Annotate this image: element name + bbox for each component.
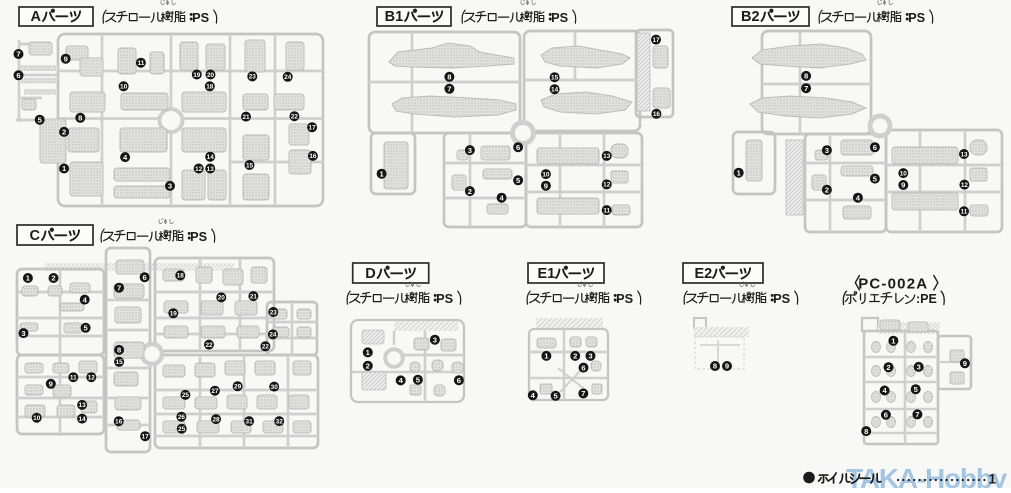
svg-text:32: 32 — [276, 418, 284, 425]
svg-text:28: 28 — [212, 416, 220, 423]
svg-text:12: 12 — [961, 182, 969, 189]
svg-text:10: 10 — [120, 84, 128, 91]
svg-text:19: 19 — [193, 72, 201, 79]
svg-text:TAKA-Hobby: TAKA-Hobby — [846, 463, 1008, 488]
svg-text:2: 2 — [62, 128, 66, 137]
svg-text:8: 8 — [713, 362, 717, 371]
svg-text:2: 2 — [825, 185, 829, 194]
svg-text:2: 2 — [51, 274, 55, 283]
svg-text:13: 13 — [79, 402, 87, 409]
svg-text:26: 26 — [178, 414, 186, 421]
svg-text:7: 7 — [581, 389, 585, 398]
svg-text:21: 21 — [242, 114, 250, 121]
svg-text:23: 23 — [249, 74, 257, 81]
svg-text:22: 22 — [291, 114, 299, 121]
svg-text:B2: B2 — [741, 9, 760, 25]
svg-text:29: 29 — [234, 384, 242, 391]
svg-text:8: 8 — [804, 72, 808, 81]
svg-text:7: 7 — [117, 283, 121, 292]
svg-text:14: 14 — [551, 87, 559, 94]
svg-text:22: 22 — [205, 342, 213, 349]
svg-text:15: 15 — [246, 162, 254, 169]
svg-text:11: 11 — [138, 60, 145, 67]
svg-text:14: 14 — [207, 154, 215, 161]
svg-text:PC-002A: PC-002A — [858, 276, 928, 293]
svg-text:27: 27 — [211, 388, 219, 395]
svg-text:16: 16 — [653, 111, 661, 118]
svg-text:7: 7 — [804, 84, 808, 93]
svg-text:PS: PS — [551, 10, 568, 25]
svg-text:16: 16 — [115, 419, 123, 426]
svg-text:9: 9 — [963, 359, 967, 368]
svg-text:PS: PS — [192, 10, 209, 25]
svg-text:10: 10 — [542, 171, 550, 178]
svg-text:8: 8 — [78, 114, 82, 123]
svg-text:13: 13 — [960, 151, 968, 158]
svg-text:6: 6 — [884, 411, 888, 420]
svg-text:9: 9 — [49, 380, 53, 389]
svg-text:8: 8 — [864, 427, 868, 436]
svg-text:6: 6 — [457, 376, 461, 385]
svg-text:3: 3 — [21, 329, 25, 338]
svg-text:D: D — [365, 266, 375, 282]
svg-text:9: 9 — [725, 362, 729, 371]
svg-text:2: 2 — [886, 363, 890, 372]
svg-text:6: 6 — [873, 143, 877, 152]
svg-text:31: 31 — [246, 418, 254, 425]
svg-text:6: 6 — [581, 363, 585, 372]
svg-text:30: 30 — [271, 384, 279, 391]
svg-text:6: 6 — [516, 143, 520, 152]
svg-text:17: 17 — [309, 125, 317, 132]
svg-text:PS: PS — [773, 291, 790, 306]
svg-text:9: 9 — [64, 54, 68, 63]
svg-text:15: 15 — [551, 75, 559, 82]
svg-text:E1: E1 — [538, 266, 556, 282]
svg-text:7: 7 — [915, 410, 919, 419]
svg-text:20: 20 — [207, 72, 215, 79]
svg-text:3: 3 — [168, 182, 172, 191]
svg-text:C: C — [30, 228, 41, 244]
svg-text:12: 12 — [88, 375, 96, 382]
svg-text:3: 3 — [468, 146, 472, 155]
svg-text:9: 9 — [901, 181, 905, 190]
svg-text:18: 18 — [206, 84, 214, 91]
svg-text:PS: PS — [190, 229, 207, 244]
svg-text:E2: E2 — [695, 266, 713, 282]
svg-text:7: 7 — [16, 50, 20, 59]
svg-text:B1: B1 — [385, 9, 404, 25]
svg-text:2: 2 — [366, 362, 370, 371]
svg-text:2: 2 — [573, 352, 577, 361]
svg-text:17: 17 — [142, 434, 150, 441]
svg-text:10: 10 — [33, 415, 41, 422]
svg-text:11: 11 — [70, 375, 77, 382]
svg-text:14: 14 — [79, 416, 87, 423]
svg-text:24: 24 — [284, 74, 292, 81]
svg-text:A: A — [31, 9, 42, 25]
svg-text:11: 11 — [603, 207, 610, 214]
svg-text:10: 10 — [900, 170, 908, 177]
svg-text:24: 24 — [269, 332, 277, 339]
svg-text:3: 3 — [588, 352, 592, 361]
svg-text:17: 17 — [652, 37, 660, 44]
svg-text:2: 2 — [468, 187, 472, 196]
svg-text:8: 8 — [447, 73, 451, 82]
svg-text:8: 8 — [117, 346, 121, 355]
svg-text:25: 25 — [182, 392, 190, 399]
svg-text:PS: PS — [616, 291, 633, 306]
svg-text:15: 15 — [116, 359, 124, 366]
svg-text:11: 11 — [961, 209, 968, 216]
svg-text:PS: PS — [436, 291, 453, 306]
svg-text:12: 12 — [603, 182, 611, 189]
svg-text:22: 22 — [262, 344, 270, 351]
svg-text:7: 7 — [447, 85, 451, 94]
svg-text:3: 3 — [825, 146, 829, 155]
svg-text:PS: PS — [908, 10, 925, 25]
svg-text:16: 16 — [309, 153, 317, 160]
svg-text:3: 3 — [917, 363, 921, 372]
svg-text:6: 6 — [142, 273, 146, 282]
svg-text:9: 9 — [544, 181, 548, 190]
svg-text:13: 13 — [603, 153, 611, 160]
svg-text:13: 13 — [207, 166, 215, 173]
svg-text:1: 1 — [989, 472, 997, 487]
svg-text:21: 21 — [250, 293, 258, 300]
svg-text:23: 23 — [270, 309, 278, 316]
svg-text::PE: :PE — [916, 292, 937, 306]
svg-text:25: 25 — [178, 426, 186, 433]
svg-text:6: 6 — [16, 71, 20, 80]
svg-text:20: 20 — [218, 295, 226, 302]
svg-text:18: 18 — [177, 273, 185, 280]
svg-text:12: 12 — [195, 166, 203, 173]
svg-text:19: 19 — [170, 311, 178, 318]
svg-text:3: 3 — [433, 335, 437, 344]
